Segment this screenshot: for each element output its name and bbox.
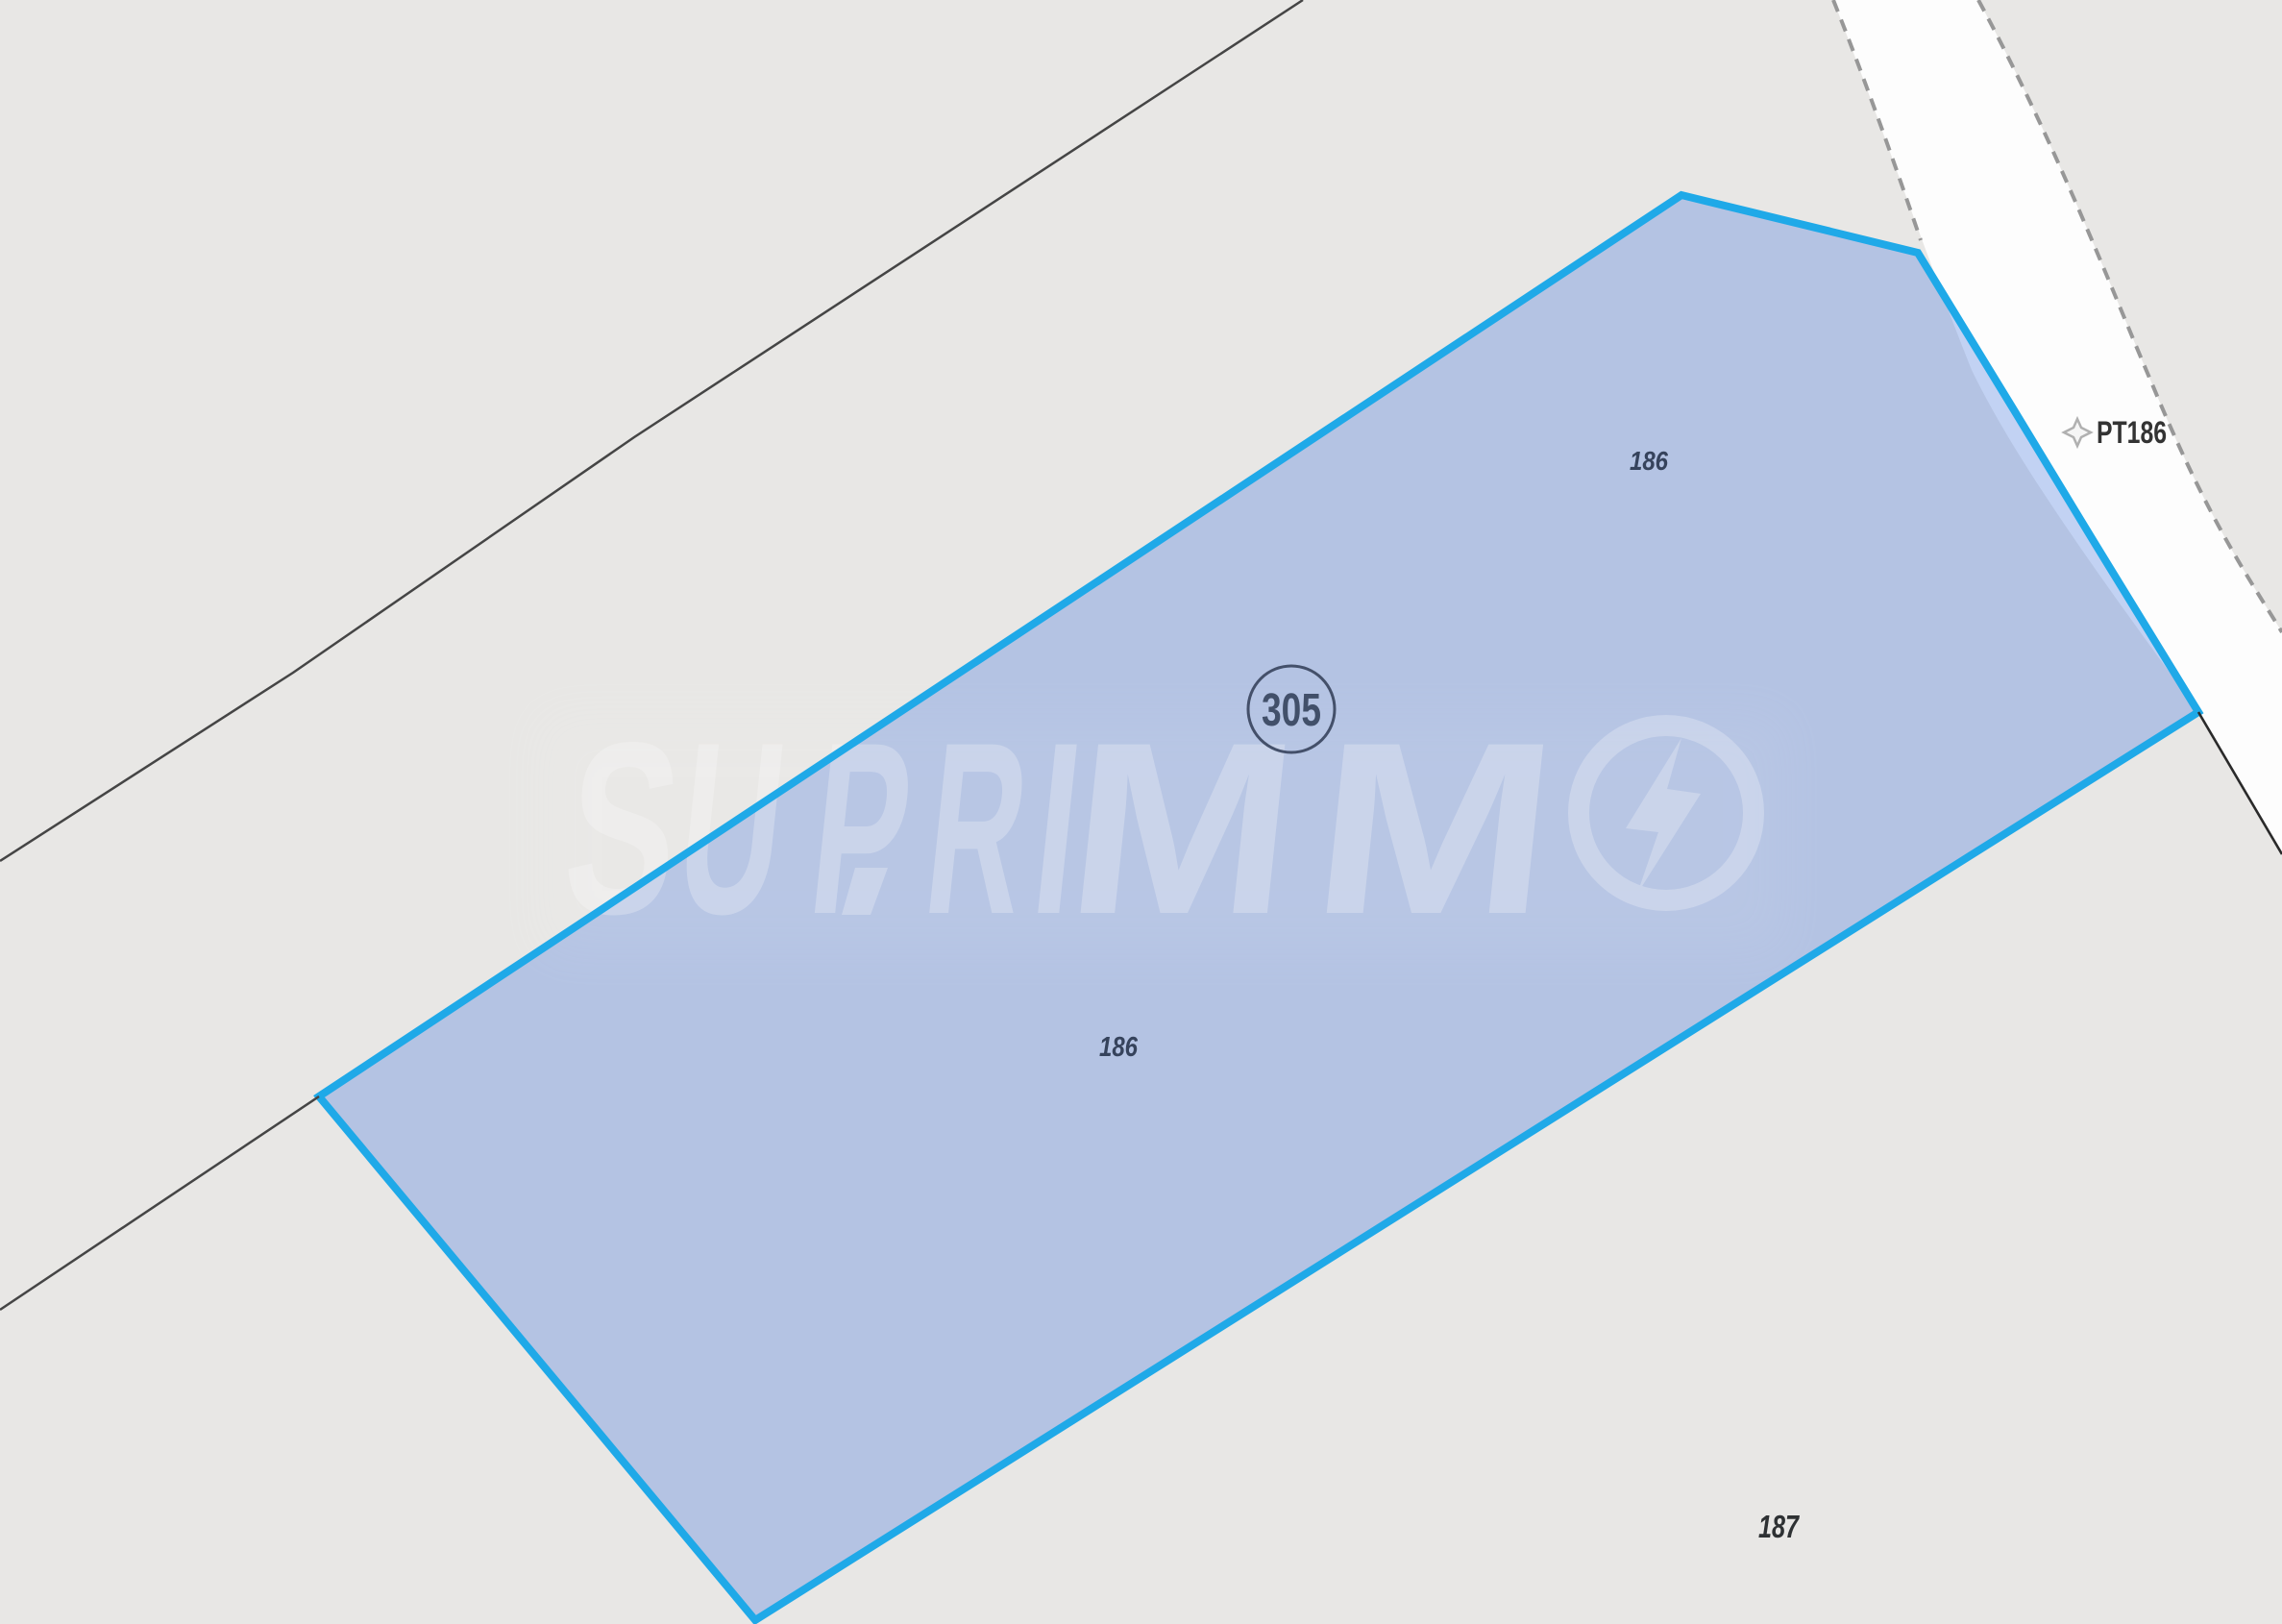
svg-text:PT186: PT186 [2097,415,2167,450]
svg-text:305: 305 [1262,685,1321,736]
svg-text:186: 186 [1099,1032,1139,1063]
svg-text:186: 186 [1630,446,1668,476]
svg-text:M: M [1302,691,1567,966]
svg-text:187: 187 [1758,1509,1800,1544]
